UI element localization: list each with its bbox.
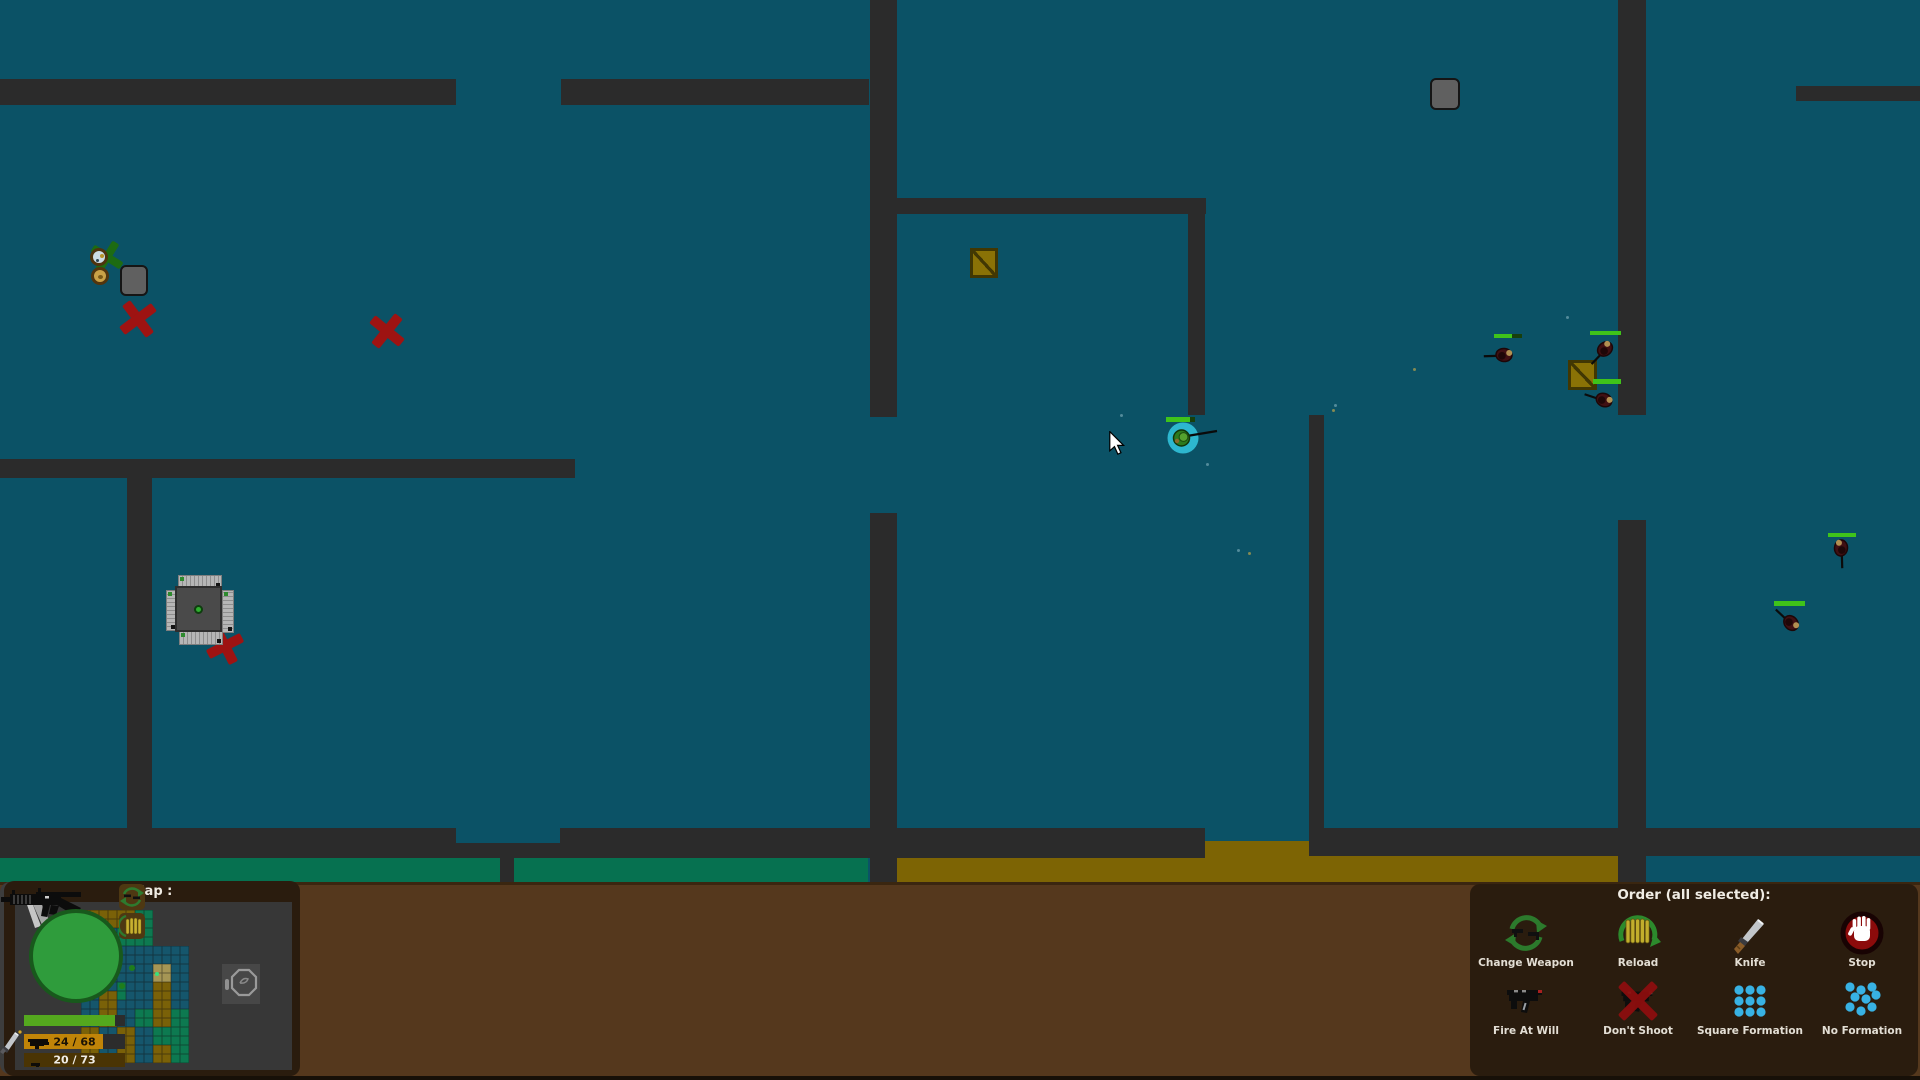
- smg-icon: [27, 1035, 51, 1049]
- stop-hand-icon: [1839, 910, 1885, 956]
- death-x-marker: [366, 310, 408, 352]
- minimap-tile: [144, 991, 153, 1000]
- dropped-item: [91, 267, 109, 285]
- minimap-tile: [135, 1054, 144, 1063]
- square-formation-label: Square Formation: [1697, 1025, 1803, 1037]
- minimap-tile: [162, 1027, 171, 1036]
- unit-health-bar: [1828, 533, 1856, 537]
- minimap-item-patch: [222, 964, 260, 1004]
- minimap-tile: [126, 973, 135, 982]
- minimap-tile: [153, 1036, 162, 1045]
- wall: [1796, 86, 1920, 101]
- minimap-tile: [153, 1009, 162, 1018]
- change-weapon-button[interactable]: Change Weapon: [1470, 906, 1582, 974]
- minimap-tile: [171, 1027, 180, 1036]
- minimap-tile: [135, 1018, 144, 1027]
- soldier-portrait: [29, 909, 123, 1003]
- minimap-tile: [171, 1018, 180, 1027]
- mouse-cursor: [1107, 431, 1127, 459]
- fire-at-will-label: Fire At Will: [1493, 1025, 1559, 1037]
- minimap-tile: [144, 982, 153, 991]
- zone-strip: [0, 858, 500, 882]
- square-formation-icon: [1727, 978, 1773, 1024]
- minimap-tile: [180, 946, 189, 955]
- enemy-soldier[interactable]: [1824, 534, 1855, 570]
- minimap-tile: [162, 1054, 171, 1063]
- minimap-tile: [144, 1054, 153, 1063]
- minimap-tile: [99, 1000, 108, 1009]
- dust-speck: [1237, 549, 1240, 552]
- fire-at-will-icon: [1503, 978, 1549, 1024]
- wall: [0, 459, 575, 478]
- wall: [1188, 214, 1205, 415]
- wall: [127, 478, 152, 828]
- minimap-tile: [171, 973, 180, 982]
- enemy-soldier[interactable]: [1482, 338, 1518, 369]
- minimap-tile: [162, 1018, 171, 1027]
- wall: [1309, 415, 1324, 828]
- bunker: [166, 573, 242, 648]
- minimap-tile: [171, 955, 180, 964]
- minimap-tile: [171, 1009, 180, 1018]
- minimap-tile: [108, 1000, 117, 1009]
- minimap-tile: [153, 982, 162, 991]
- dust-speck: [1334, 404, 1337, 407]
- secondary-ammo-bar: 20 / 73: [24, 1053, 125, 1067]
- bullets-icon: [119, 924, 145, 943]
- minimap-tile: [153, 955, 162, 964]
- minimap-tile: [135, 982, 144, 991]
- minimap-tile: [144, 937, 153, 946]
- minimap-tile: [117, 1000, 126, 1009]
- minimap-tile: [153, 1018, 162, 1027]
- sandbag-wall: [222, 590, 234, 633]
- health-bar: [24, 1015, 125, 1026]
- wall: [561, 79, 869, 105]
- minimap-tile: [144, 1045, 153, 1054]
- minimap-tile: [162, 1045, 171, 1054]
- minimap-tile: [144, 919, 153, 928]
- minimap-tile: [108, 910, 117, 919]
- minimap-unit-dot: [119, 983, 125, 989]
- dont-shoot-icon: [1615, 978, 1661, 1024]
- bunker-core: [175, 586, 222, 632]
- minimap-tile: [126, 946, 135, 955]
- minimap-tile: [153, 1027, 162, 1036]
- bottom-hud-bar: Map :: [0, 882, 1920, 1080]
- reload-button[interactable]: Reload: [1582, 906, 1694, 974]
- health-bar-fill: [24, 1015, 115, 1026]
- minimap-tile: [162, 955, 171, 964]
- minimap-tile: [153, 1054, 162, 1063]
- minimap-tile: [126, 955, 135, 964]
- minimap-tile: [144, 1036, 153, 1045]
- minimap-tile: [126, 982, 135, 991]
- knife-button[interactable]: Knife: [1694, 906, 1806, 974]
- sandbag-wall: [179, 631, 223, 645]
- fire-at-will-button[interactable]: Fire At Will: [1470, 974, 1582, 1042]
- minimap-tile: [180, 964, 189, 973]
- minimap-tile: [162, 946, 171, 955]
- compass-icon: [230, 968, 258, 1002]
- minimap-tile: [135, 1036, 144, 1045]
- zone-strip: [1205, 841, 1309, 858]
- change-weapon-icon: [119, 895, 145, 914]
- minimap-tile: [126, 1018, 135, 1027]
- wall: [0, 79, 456, 105]
- minimap-tile: [126, 1036, 135, 1045]
- minimap-tile: [162, 991, 171, 1000]
- wall: [0, 828, 456, 858]
- minimap-tile: [126, 1000, 135, 1009]
- change-weapon-order-icon: [1503, 910, 1549, 956]
- minimap-tile: [162, 982, 171, 991]
- reload-label: Reload: [1618, 957, 1659, 969]
- minimap-tile: [144, 1027, 153, 1036]
- unit-health-bar: [1593, 379, 1621, 384]
- minimap-tile: [135, 1000, 144, 1009]
- supply-box: [1430, 78, 1460, 110]
- player-unit-selected[interactable]: [1165, 420, 1221, 456]
- minimap-tile: [171, 1000, 180, 1009]
- minimap-tile: [135, 946, 144, 955]
- game-screen: Map :: [0, 0, 1920, 1080]
- order-panel-title: Order (all selected):: [1470, 887, 1918, 903]
- wall: [870, 0, 897, 417]
- minimap-tile: [135, 1027, 144, 1036]
- minimap-tile: [171, 991, 180, 1000]
- minimap-tile: [144, 955, 153, 964]
- change-weapon-label: Change Weapon: [1478, 957, 1574, 969]
- minimap-tile: [162, 1000, 171, 1009]
- dont-shoot-label: Don't Shoot: [1603, 1025, 1673, 1037]
- minimap-tile: [90, 1000, 99, 1009]
- minimap-tile: [144, 973, 153, 982]
- minimap-unit-dot: [129, 965, 135, 971]
- minimap-tile: [144, 1018, 153, 1027]
- minimap-tile: [180, 973, 189, 982]
- minimap-unit-dot: [155, 972, 159, 976]
- minimap-tile: [180, 1018, 189, 1027]
- wall: [1618, 0, 1646, 415]
- knife-icon: [0, 1028, 24, 1058]
- minimap-tile: [162, 973, 171, 982]
- minimap-tile: [171, 964, 180, 973]
- minimap-tile: [135, 973, 144, 982]
- wall: [896, 198, 1206, 214]
- minimap-tile: [171, 946, 180, 955]
- pistol-icon: [30, 1056, 42, 1067]
- minimap-tile: [171, 1045, 180, 1054]
- dont-shoot-button[interactable]: Don't Shoot: [1582, 974, 1694, 1042]
- minimap-tile: [144, 1000, 153, 1009]
- wall: [560, 828, 1205, 858]
- stop-label: Stop: [1848, 957, 1875, 969]
- dust-speck: [1120, 414, 1123, 417]
- minimap-tile: [171, 1036, 180, 1045]
- ammo-crate: [970, 248, 998, 278]
- minimap-tile: [126, 1054, 135, 1063]
- unit-health-bar: [1494, 334, 1522, 338]
- minimap-item-pill: [225, 979, 229, 990]
- knife-label: Knife: [1735, 957, 1766, 969]
- minimap-tile: [135, 955, 144, 964]
- order-panel: Order (all selected):: [1470, 884, 1918, 1076]
- minimap-tile: [180, 1009, 189, 1018]
- wall: [870, 513, 897, 882]
- dropped-item: [90, 248, 108, 266]
- minimap-tile: [144, 946, 153, 955]
- bunker-light: [194, 605, 203, 614]
- minimap-tile: [126, 991, 135, 1000]
- wall: [1309, 828, 1920, 856]
- wall: [456, 843, 560, 858]
- stop-button[interactable]: Stop: [1806, 906, 1918, 974]
- supply-box: [120, 265, 148, 296]
- unit-health-bar: [1166, 417, 1195, 422]
- minimap-tile: [153, 991, 162, 1000]
- minimap-tile: [144, 964, 153, 973]
- unit-health-bar: [1774, 601, 1805, 606]
- dust-speck: [1566, 316, 1569, 319]
- minimap-tile: [108, 991, 117, 1000]
- minimap-tile: [153, 1000, 162, 1009]
- minimap-tile: [180, 1027, 189, 1036]
- dust-speck: [1332, 409, 1335, 412]
- no-formation-button[interactable]: No Formation: [1806, 974, 1918, 1042]
- minimap-tile: [171, 1054, 180, 1063]
- minimap-tile: [153, 946, 162, 955]
- order-buttons-grid: Change Weapon: [1470, 906, 1918, 1042]
- minimap-tile: [171, 982, 180, 991]
- minimap-tile: [162, 1036, 171, 1045]
- zone-strip: [514, 858, 868, 882]
- minimap-tile: [180, 982, 189, 991]
- minimap-tile: [144, 910, 153, 919]
- minimap-tile: [135, 1045, 144, 1054]
- minimap-tile: [117, 991, 126, 1000]
- minimap-tile: [162, 1009, 171, 1018]
- minimap-tile: [180, 1054, 189, 1063]
- death-x-marker: [115, 296, 160, 341]
- no-formation-icon: [1839, 978, 1885, 1024]
- reload-icon: [1615, 910, 1661, 956]
- change-weapon-mini-button[interactable]: [119, 884, 145, 910]
- unit-health-bar: [1590, 331, 1621, 335]
- minimap-tile: [144, 928, 153, 937]
- minimap-tile: [126, 1045, 135, 1054]
- minimap-tile: [162, 964, 171, 973]
- dust-speck: [1206, 463, 1209, 466]
- minimap-tile: [144, 1009, 153, 1018]
- minimap-tile: [126, 1009, 135, 1018]
- knife-order-icon: [1727, 910, 1773, 956]
- minimap-tile: [180, 955, 189, 964]
- minimap-tile: [180, 1000, 189, 1009]
- minimap-tile: [135, 991, 144, 1000]
- ammo-mini-button[interactable]: [119, 913, 145, 939]
- minimap-tile: [135, 964, 144, 973]
- square-formation-button[interactable]: Square Formation: [1694, 974, 1806, 1042]
- minimap-tile: [126, 1027, 135, 1036]
- minimap-tile: [180, 991, 189, 1000]
- wall: [500, 858, 514, 882]
- minimap-tile: [180, 1045, 189, 1054]
- zone-strip: [897, 856, 1618, 882]
- primary-ammo-bar: 24 / 68: [24, 1034, 125, 1049]
- minimap-tile: [153, 1045, 162, 1054]
- minimap-tile: [180, 1036, 189, 1045]
- minimap-tile: [135, 1009, 144, 1018]
- dust-speck: [1248, 552, 1251, 555]
- dust-speck: [1413, 368, 1416, 371]
- no-formation-label: No Formation: [1822, 1025, 1902, 1037]
